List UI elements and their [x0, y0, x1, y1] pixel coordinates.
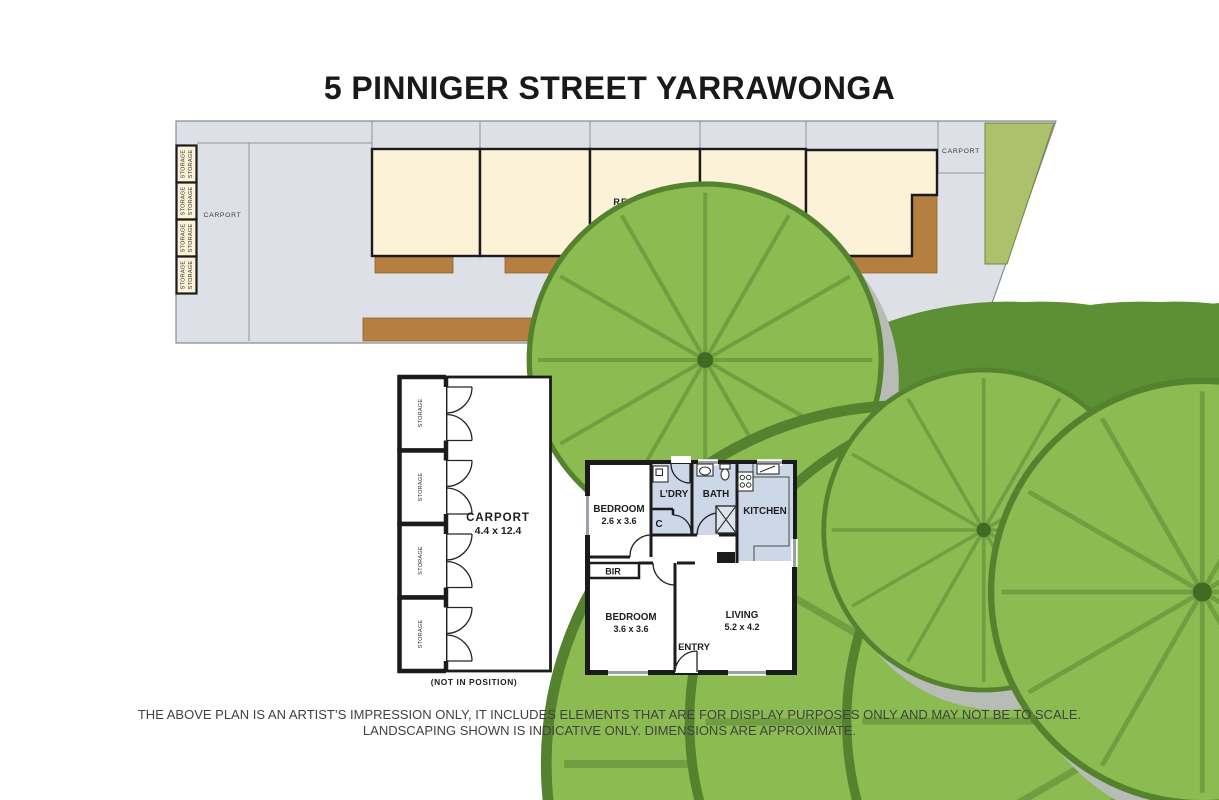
site-carport-right-label: CARPORT	[942, 148, 980, 155]
bedroom1-dimensions: 2.6 x 3.6	[601, 516, 636, 526]
disclaimer-line1: THE ABOVE PLAN IS AN ARTIST’S IMPRESSION…	[138, 707, 1081, 722]
disclaimer: THE ABOVE PLAN IS AN ARTIST’S IMPRESSION…	[0, 707, 1219, 738]
carport-note: (NOT IN POSITION)	[431, 677, 518, 687]
site-carport-left-label: CARPORT	[203, 212, 241, 219]
living-dimensions: 5.2 x 4.2	[724, 622, 759, 632]
laundry-tub-bowl	[656, 469, 663, 476]
kitchen-label: KITCHEN	[743, 506, 787, 517]
toilet-cistern	[720, 464, 730, 469]
wall-return	[717, 552, 735, 563]
house-plan: BEDROOM 2.6 x 3.6 L’DRY BATH KITCHEN C B…	[587, 460, 795, 673]
carport-storage-label: STORAGE	[418, 473, 424, 502]
toilet-bowl	[721, 469, 729, 480]
site-storage-label: STORAGE	[180, 150, 186, 179]
basin	[700, 467, 711, 475]
living-label: LIVING	[726, 610, 759, 621]
site-green-area	[985, 123, 1054, 264]
carport-storage-label: STORAGE	[418, 620, 424, 649]
site-storage-label: STORAGE	[180, 224, 186, 253]
site-storage-label: STORAGE	[188, 224, 194, 253]
closet-label: C	[655, 519, 662, 530]
bedroom1-label: BEDROOM	[593, 504, 644, 515]
site-storage-label: STORAGE	[180, 187, 186, 216]
bath-label: BATH	[703, 489, 729, 500]
garden-bed	[375, 257, 453, 273]
site-storage-label: STORAGE	[188, 150, 194, 179]
plans-canvas: STORAGE STORAGE STORAGE STORAGE STORAGE …	[0, 0, 1219, 800]
floorplan-page: 5 PINNIGER STREET YARRAWONGA	[0, 0, 1219, 800]
site-storage-label: STORAGE	[180, 261, 186, 290]
carport-dimensions: 4.4 x 12.4	[475, 525, 522, 537]
entry-label: ENTRY	[678, 642, 711, 653]
disclaimer-line2: LANDSCAPING SHOWN IS INDICATIVE ONLY. DI…	[363, 723, 856, 738]
site-storage-label: STORAGE	[188, 187, 194, 216]
bir-label: BIR	[605, 567, 621, 577]
carport-storage-label: STORAGE	[418, 546, 424, 575]
carport-outline	[446, 377, 551, 671]
carport-plan: STORAGE STORAGE STORAGE STORAGE CARPORT …	[400, 377, 551, 687]
carport-room-label: CARPORT	[466, 512, 530, 524]
site-storage-label: STORAGE	[188, 261, 194, 290]
residence-unit	[372, 149, 480, 256]
bedroom2-dimensions: 3.6 x 3.6	[613, 624, 648, 634]
laundry-label: L’DRY	[660, 489, 689, 500]
cooktop	[738, 472, 753, 491]
site-storage-strip: STORAGE STORAGE STORAGE STORAGE STORAGE …	[177, 146, 197, 294]
bedroom2-label: BEDROOM	[605, 612, 656, 623]
carport-storage-label: STORAGE	[418, 399, 424, 428]
